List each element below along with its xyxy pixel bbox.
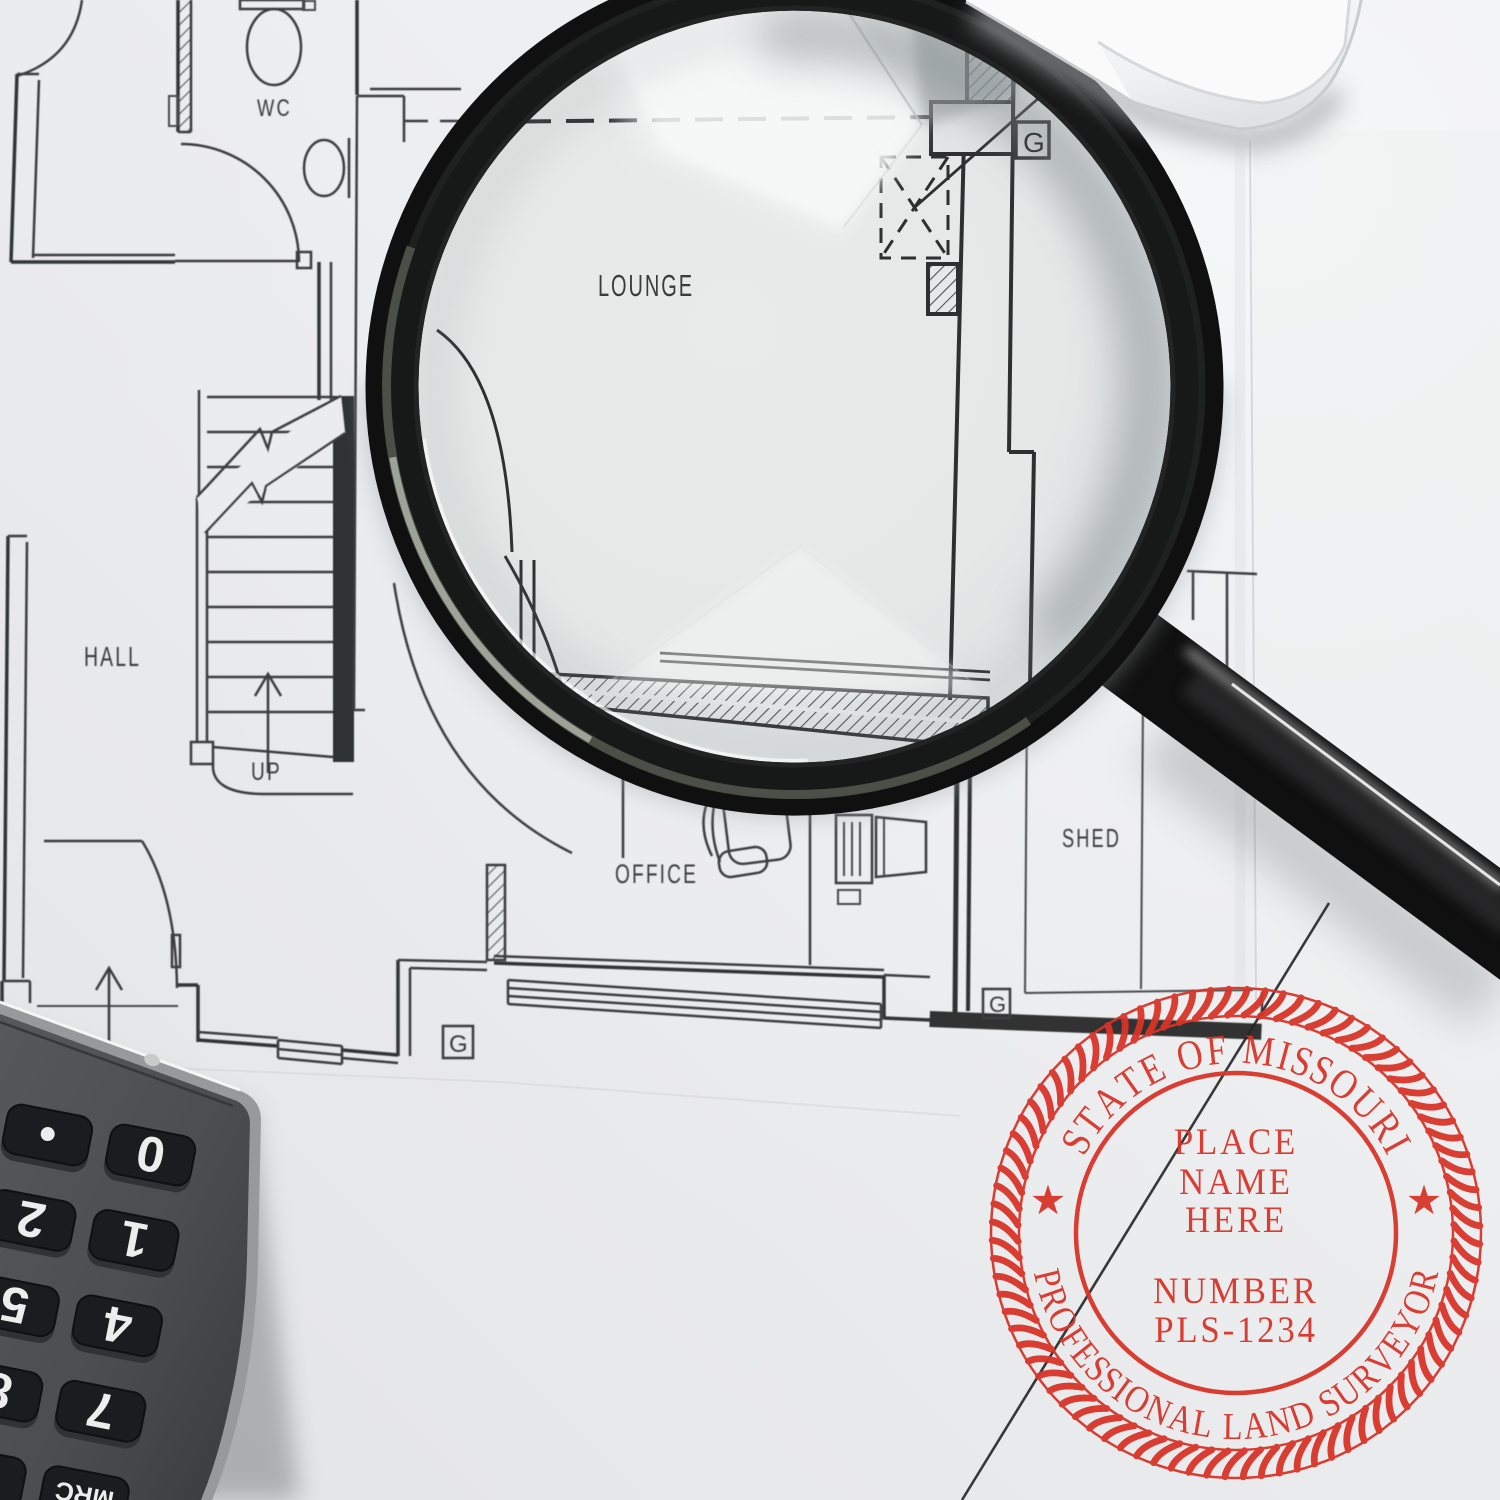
svg-text:L: L bbox=[1222, 1405, 1243, 1448]
svg-text:HALL: HALL bbox=[84, 641, 141, 672]
svg-text:UP: UP bbox=[251, 758, 282, 786]
svg-text:HERE: HERE bbox=[1185, 1199, 1287, 1240]
svg-text:G: G bbox=[1023, 127, 1048, 158]
svg-text:WC: WC bbox=[257, 95, 292, 122]
svg-text:LOUNGE: LOUNGE bbox=[598, 268, 694, 303]
svg-text:SHED: SHED bbox=[1062, 823, 1121, 853]
svg-text:G: G bbox=[989, 992, 1009, 1017]
svg-text:M: M bbox=[1240, 1026, 1277, 1076]
svg-text:PLACE: PLACE bbox=[1174, 1121, 1298, 1162]
svg-text:NUMBER: NUMBER bbox=[1153, 1270, 1319, 1311]
svg-text:OFFICE: OFFICE bbox=[615, 859, 698, 889]
svg-text:NAME: NAME bbox=[1179, 1161, 1293, 1202]
svg-text:G: G bbox=[449, 1031, 471, 1058]
svg-text:PLS-1234: PLS-1234 bbox=[1154, 1309, 1318, 1350]
